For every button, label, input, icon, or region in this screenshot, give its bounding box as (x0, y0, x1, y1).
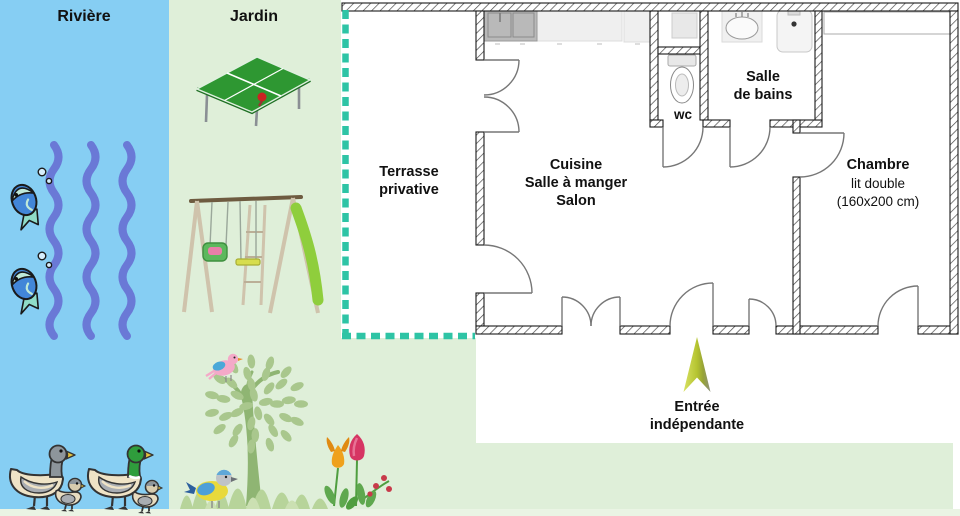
wall (700, 11, 708, 120)
room-label-living: Salle à manger (525, 175, 628, 191)
wall (476, 11, 484, 60)
room-label-terrace: privative (379, 182, 439, 198)
washing-machine-icon (672, 13, 697, 38)
wall (776, 326, 878, 334)
wall (476, 326, 562, 334)
kitchen-appliance (624, 11, 652, 42)
room-label-bedroom-sub: lit double (851, 176, 905, 191)
wall (815, 11, 822, 120)
wall (793, 177, 800, 334)
apartment-plan-scene: Rivière (0, 0, 960, 516)
wall (950, 11, 958, 334)
wall (476, 132, 484, 245)
entrance-label: Entrée (674, 399, 719, 415)
room-label-bathroom: de bains (734, 87, 793, 103)
room-label-bedroom: Chambre (847, 157, 910, 173)
bottom-strip (0, 509, 960, 516)
wall (703, 120, 730, 127)
wall (342, 3, 958, 11)
wall (658, 47, 700, 54)
garden-panel-extension (341, 338, 476, 509)
room-label-living: Salon (556, 193, 595, 209)
garden-bottom-band (476, 443, 953, 509)
entrance-label: indépendante (650, 417, 744, 433)
room-label-living: Cuisine (550, 157, 602, 173)
wall (650, 120, 663, 127)
wall (476, 293, 484, 326)
shower-icon (777, 10, 812, 52)
wall (793, 120, 800, 133)
wall (620, 326, 670, 334)
river-panel (0, 0, 169, 509)
wall (650, 11, 658, 120)
room-label-wc: wc (673, 107, 693, 122)
kitchen-counter (484, 9, 652, 44)
scene-canvas: Rivière (0, 0, 960, 516)
wall (713, 326, 749, 334)
floorplan: Terrasse privative Cuisine Salle à mange… (342, 3, 958, 337)
room-label-terrace: Terrasse (379, 164, 438, 180)
room-label-bathroom: Salle (746, 69, 780, 85)
wardrobe (824, 12, 950, 34)
room-label-bedroom-sub: (160x200 cm) (837, 194, 920, 209)
river-title: Rivière (57, 8, 110, 25)
garden-title: Jardin (230, 8, 278, 25)
bathroom-sink-icon (722, 10, 762, 42)
